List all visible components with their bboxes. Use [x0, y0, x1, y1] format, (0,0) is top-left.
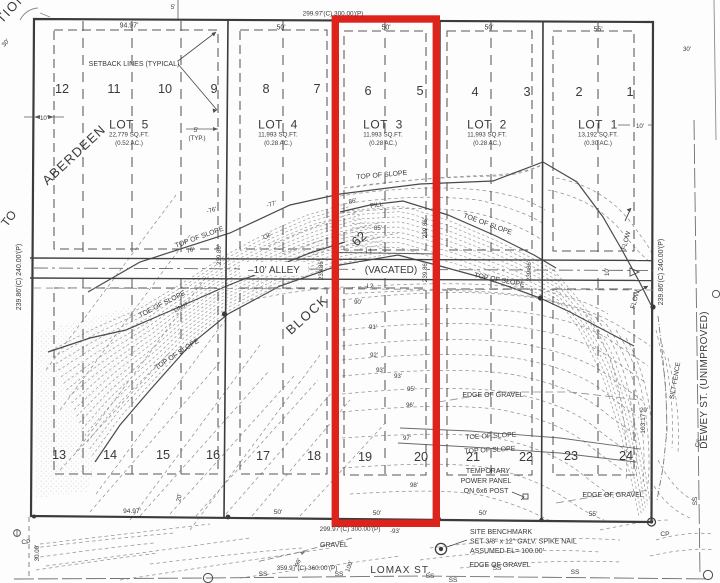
svg-text:SS: SS	[426, 573, 435, 580]
svg-text:LOT 4: LOT 4	[258, 118, 298, 132]
svg-text:(0.28 AC.): (0.28 AC.)	[264, 140, 292, 147]
svg-text:8: 8	[262, 82, 269, 96]
svg-text:7: 7	[313, 82, 320, 96]
svg-text:94.97': 94.97'	[123, 508, 141, 515]
svg-text:–10' ALLEY: –10' ALLEY	[248, 265, 300, 276]
svg-text:10': 10'	[40, 115, 48, 122]
svg-text:239.86': 239.86'	[526, 261, 533, 281]
svg-text:DEWEY ST. (UNIMPROVED): DEWEY ST. (UNIMPROVED)	[699, 311, 710, 449]
svg-text:10': 10'	[636, 123, 644, 130]
svg-text:SS: SS	[692, 496, 699, 505]
svg-text:LOMAX ST.: LOMAX ST.	[370, 565, 431, 576]
svg-text:TEMPORARY: TEMPORARY	[466, 468, 511, 475]
svg-text:239.86'(C) 240.00'(P): 239.86'(C) 240.00'(P)	[16, 244, 23, 311]
svg-text:16: 16	[206, 448, 220, 462]
svg-text:17: 17	[256, 449, 270, 463]
svg-text:11,993 SQ.FT.: 11,993 SQ.FT.	[363, 132, 403, 139]
svg-text:50': 50'	[479, 510, 488, 517]
svg-text:359.97'(C) 360.00'(P): 359.97'(C) 360.00'(P)	[277, 565, 338, 572]
svg-text:10: 10	[158, 82, 172, 96]
svg-text:5': 5'	[194, 127, 199, 134]
svg-text:239.86': 239.86'	[422, 262, 429, 282]
svg-text:(0.52 AC.): (0.52 AC.)	[115, 140, 143, 147]
svg-text:GRAVEL: GRAVEL	[320, 542, 348, 549]
svg-text:ON 6x6 POST: ON 6x6 POST	[464, 488, 509, 495]
svg-text:13,192 SQ.FT.: 13,192 SQ.FT.	[578, 132, 618, 139]
svg-text:19: 19	[358, 450, 372, 464]
svg-text:(0.28 AC.): (0.28 AC.)	[369, 140, 397, 147]
svg-text:6: 6	[364, 84, 371, 98]
svg-text:EDGE OF GRAVEL: EDGE OF GRAVEL	[462, 392, 523, 399]
svg-text:24: 24	[619, 449, 633, 463]
svg-text:95': 95'	[407, 386, 415, 393]
svg-text:86': 86'	[348, 197, 357, 205]
svg-text:11,993 SQ.FT.: 11,993 SQ.FT.	[258, 132, 298, 139]
svg-text:SET 3/8" x 12" GALV. SPIKE NAI: SET 3/8" x 12" GALV. SPIKE NAIL	[470, 539, 577, 546]
svg-text:5': 5'	[171, 4, 176, 11]
svg-text:93': 93'	[394, 373, 402, 380]
svg-text:10': 10'	[604, 268, 611, 276]
svg-text:14: 14	[103, 448, 117, 462]
svg-text:CP: CP	[21, 539, 31, 546]
svg-text:91': 91'	[369, 324, 377, 331]
svg-text:LOT 3: LOT 3	[363, 118, 403, 132]
svg-text:22,779 SQ.FT.: 22,779 SQ.FT.	[109, 132, 149, 139]
svg-text:239.86': 239.86'	[422, 218, 429, 238]
svg-text:EDGE OF GRAVEL: EDGE OF GRAVEL	[582, 492, 643, 499]
svg-text:11: 11	[107, 82, 120, 96]
svg-text:SS: SS	[259, 571, 268, 578]
svg-text:SS: SS	[449, 577, 458, 583]
svg-text:93': 93'	[376, 367, 384, 374]
svg-text:1: 1	[626, 85, 633, 99]
svg-text:50': 50'	[484, 25, 493, 32]
svg-text:20: 20	[414, 450, 428, 464]
svg-text:55': 55'	[589, 511, 598, 518]
svg-text:94.97': 94.97'	[120, 23, 139, 30]
svg-text:SS: SS	[571, 569, 580, 576]
svg-text:239.86': 239.86'	[216, 245, 223, 265]
svg-text:299.97'(C) 300.00'(P): 299.97'(C) 300.00'(P)	[320, 526, 381, 533]
svg-text:13: 13	[52, 448, 66, 462]
svg-text:LOT 2: LOT 2	[467, 118, 507, 132]
svg-text:55': 55'	[593, 27, 602, 34]
svg-text:9: 9	[210, 82, 217, 96]
svg-text:SETBACK LINES (TYPICAL): SETBACK LINES (TYPICAL)	[89, 61, 180, 68]
svg-text:L2: L2	[367, 283, 374, 290]
svg-text:CP: CP	[660, 531, 670, 538]
svg-text:ASSUMED EL= 100.00’: ASSUMED EL= 100.00’	[470, 548, 545, 555]
svg-text:103.17': 103.17'	[640, 412, 647, 433]
svg-text:4: 4	[471, 85, 478, 99]
svg-text:50': 50'	[276, 25, 285, 32]
svg-text:(TYP.): (TYP.)	[188, 135, 205, 142]
svg-text:11,993 SQ.FT.: 11,993 SQ.FT.	[467, 132, 507, 139]
svg-text:POWER PANEL: POWER PANEL	[461, 478, 512, 485]
svg-text:18: 18	[307, 449, 321, 463]
svg-text:(VACATED): (VACATED)	[365, 265, 417, 276]
svg-text:97': 97'	[403, 435, 411, 442]
svg-text:50': 50'	[274, 509, 283, 516]
svg-text:3: 3	[523, 85, 530, 99]
svg-text:30': 30'	[683, 46, 691, 53]
svg-text:12: 12	[55, 82, 69, 96]
svg-text:98': 98'	[410, 482, 418, 489]
svg-text:92': 92'	[370, 352, 378, 359]
svg-text:L1: L1	[366, 248, 373, 255]
svg-text:239.86': 239.86'	[318, 260, 325, 280]
svg-text:-93': -93'	[390, 528, 400, 535]
svg-text:299.97'(C) 300.00'(P): 299.97'(C) 300.00'(P)	[303, 11, 364, 18]
svg-text:50': 50'	[373, 510, 382, 517]
svg-text:SITE BENCHMARK: SITE BENCHMARK	[470, 529, 533, 536]
svg-text:23: 23	[564, 449, 578, 463]
svg-text:22: 22	[519, 450, 533, 464]
svg-text:(0.28 AC.): (0.28 AC.)	[473, 140, 501, 147]
svg-text:SS: SS	[335, 571, 344, 578]
svg-text:90': 90'	[354, 299, 362, 306]
svg-text:LOT 5: LOT 5	[109, 118, 149, 132]
svg-text:50': 50'	[381, 25, 390, 32]
svg-text:20': 20'	[175, 493, 183, 502]
svg-text:239.86'(C) 240.00'(P): 239.86'(C) 240.00'(P)	[658, 239, 665, 306]
svg-text:15: 15	[156, 448, 170, 462]
svg-text:96': 96'	[406, 402, 414, 409]
svg-text:5: 5	[416, 84, 423, 98]
svg-text:(0.30 AC.): (0.30 AC.)	[584, 140, 612, 147]
svg-text:85': 85'	[374, 225, 382, 232]
svg-text:LOT 1: LOT 1	[578, 118, 618, 132]
svg-text:2: 2	[575, 85, 582, 99]
svg-text:30.00': 30.00'	[34, 545, 41, 562]
svg-text:SS: SS	[493, 565, 502, 572]
